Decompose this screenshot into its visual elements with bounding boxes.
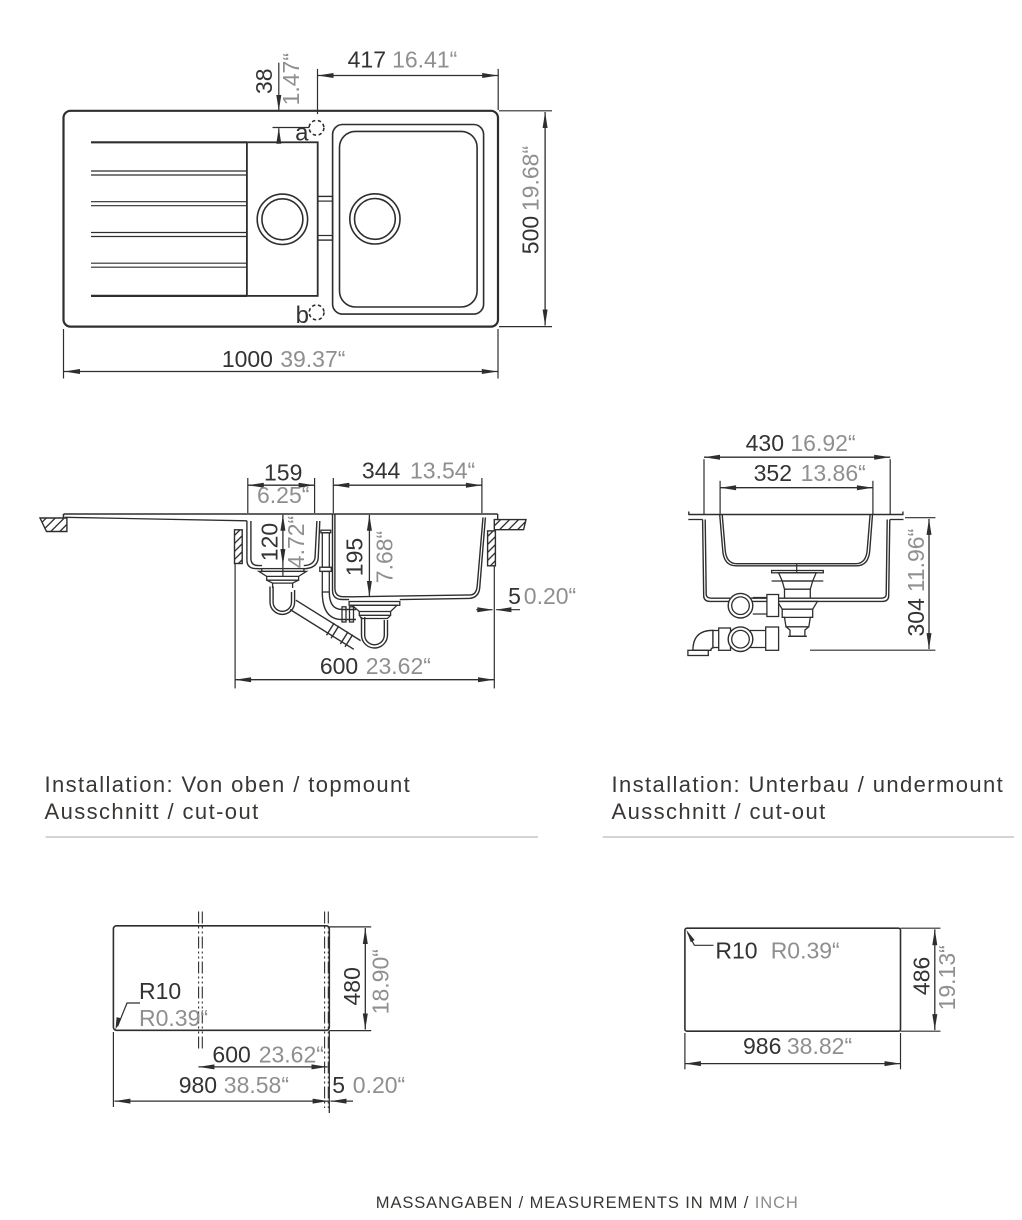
svg-text:430: 430 [746, 430, 784, 456]
svg-text:600: 600 [212, 1041, 250, 1067]
svg-text:13.54“: 13.54“ [410, 458, 475, 484]
svg-text:16.41“: 16.41“ [392, 47, 457, 73]
svg-text:23.62“: 23.62“ [366, 653, 431, 679]
svg-text:1000: 1000 [222, 346, 273, 372]
svg-text:1.47“: 1.47“ [278, 53, 304, 105]
svg-text:6.25“: 6.25“ [257, 482, 309, 508]
svg-text:480: 480 [339, 967, 365, 1005]
svg-text:352: 352 [754, 460, 792, 486]
svg-text:Ausschnitt / cut-out: Ausschnitt / cut-out [45, 799, 260, 824]
svg-text:486: 486 [909, 957, 935, 995]
svg-text:4.72“: 4.72“ [283, 516, 309, 568]
svg-text:19.13“: 19.13“ [934, 945, 960, 1010]
svg-text:980: 980 [179, 1072, 217, 1098]
svg-text:38: 38 [251, 68, 277, 94]
svg-text:a: a [295, 120, 309, 147]
svg-text:R10: R10 [139, 978, 181, 1004]
svg-text:986: 986 [743, 1033, 781, 1059]
svg-text:38.58“: 38.58“ [224, 1072, 289, 1098]
svg-text:23.62“: 23.62“ [259, 1041, 324, 1067]
svg-text:R0.39“: R0.39“ [771, 938, 840, 964]
svg-text:5: 5 [508, 583, 521, 609]
svg-text:R0.39“: R0.39“ [139, 1005, 208, 1031]
svg-text:600: 600 [320, 653, 358, 679]
svg-text:0.20“: 0.20“ [353, 1072, 405, 1098]
svg-text:195: 195 [342, 538, 368, 576]
svg-text:11.96“: 11.96“ [903, 529, 929, 593]
svg-text:5: 5 [332, 1072, 345, 1098]
svg-text:18.90“: 18.90“ [368, 949, 394, 1014]
svg-text:304: 304 [903, 598, 929, 637]
svg-text:13.86“: 13.86“ [801, 460, 866, 486]
svg-text:500: 500 [518, 216, 544, 254]
svg-text:120: 120 [257, 523, 283, 561]
svg-text:b: b [296, 302, 309, 329]
svg-text:344: 344 [362, 458, 401, 484]
svg-text:0.20“: 0.20“ [524, 583, 576, 609]
svg-text:19.68“: 19.68“ [518, 146, 544, 211]
svg-text:16.92“: 16.92“ [790, 430, 855, 456]
svg-text:Installation: Von oben / topmo: Installation: Von oben / topmount [45, 772, 412, 797]
svg-text:7.68“: 7.68“ [371, 531, 397, 583]
svg-text:417: 417 [348, 47, 386, 73]
svg-text:Ausschnitt / cut-out: Ausschnitt / cut-out [612, 799, 827, 824]
svg-text:38.82“: 38.82“ [787, 1033, 852, 1059]
svg-text:MASSANGABEN / MEASUREMENTS IN: MASSANGABEN / MEASUREMENTS IN MM / INCH [376, 1194, 799, 1212]
svg-text:Installation: Unterbau / under: Installation: Unterbau / undermount [612, 772, 1005, 797]
svg-text:R10: R10 [715, 938, 757, 964]
svg-text:39.37“: 39.37“ [280, 346, 345, 372]
